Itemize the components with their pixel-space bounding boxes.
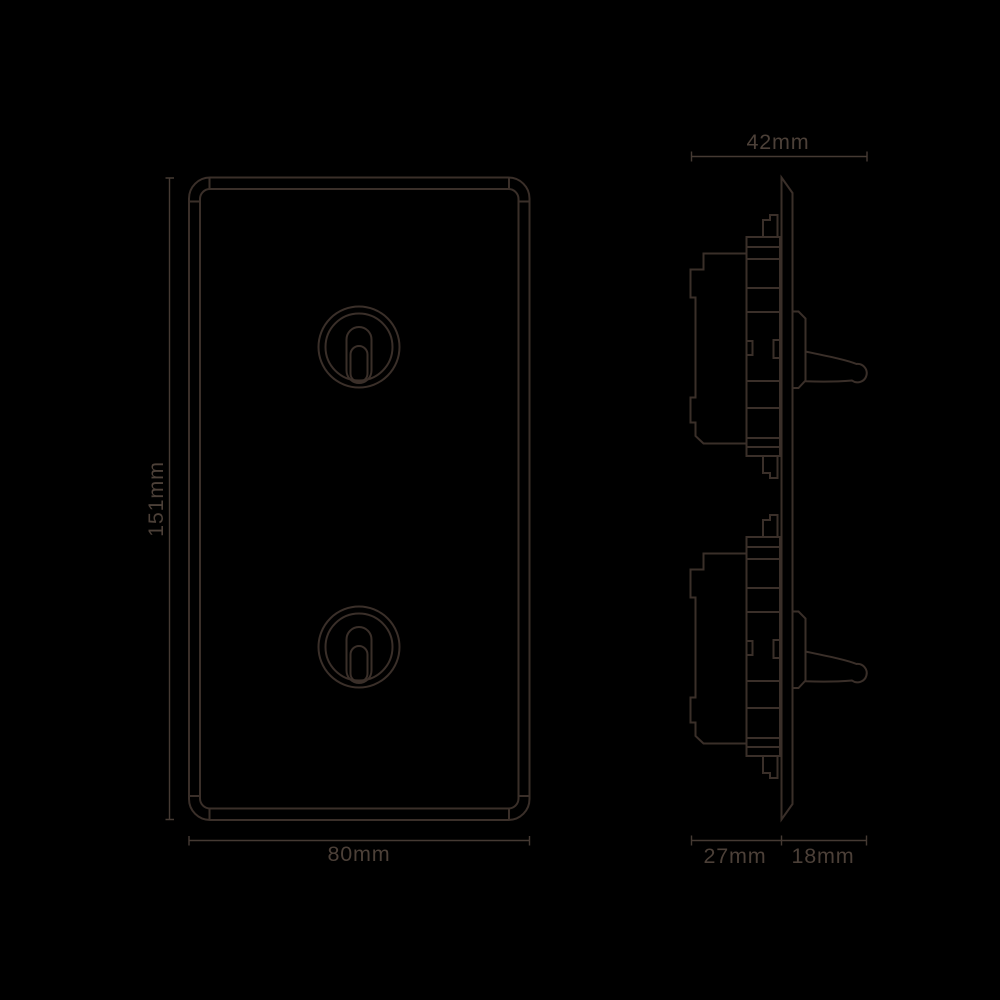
- side-view: 42mm 27mm 18mm: [691, 130, 868, 868]
- recessed-depth-dimension-label: 27mm: [704, 844, 767, 868]
- side-module-bottom: [691, 515, 867, 778]
- height-dimension-label: 151mm: [144, 461, 168, 537]
- front-toggle-top: [319, 307, 400, 388]
- overall-depth-dimension-label: 42mm: [747, 130, 810, 154]
- front-plate-outer-edge: [189, 178, 530, 821]
- overall-depth-dimension: 42mm: [692, 130, 868, 162]
- front-toggle-bottom: [319, 607, 400, 688]
- side-module-top: [691, 215, 867, 478]
- toggle-switch-dimension-drawing: 151mm 80mm 42mm 27mm 18mm: [0, 0, 1000, 1000]
- width-dimension: 80mm: [189, 836, 530, 866]
- depth-split-dimension: 27mm 18mm: [692, 836, 867, 869]
- front-plate-corner-bevel-ticks: [190, 178, 530, 820]
- height-dimension: 151mm: [144, 178, 174, 820]
- dimension-drawing-canvas: 151mm 80mm 42mm 27mm 18mm: [0, 0, 1000, 1000]
- width-dimension-label: 80mm: [328, 842, 391, 866]
- projection-depth-dimension-label: 18mm: [792, 844, 855, 868]
- side-plate-profile: [782, 178, 793, 820]
- front-view: 151mm 80mm: [144, 178, 530, 867]
- front-plate-inner-edge: [200, 189, 519, 809]
